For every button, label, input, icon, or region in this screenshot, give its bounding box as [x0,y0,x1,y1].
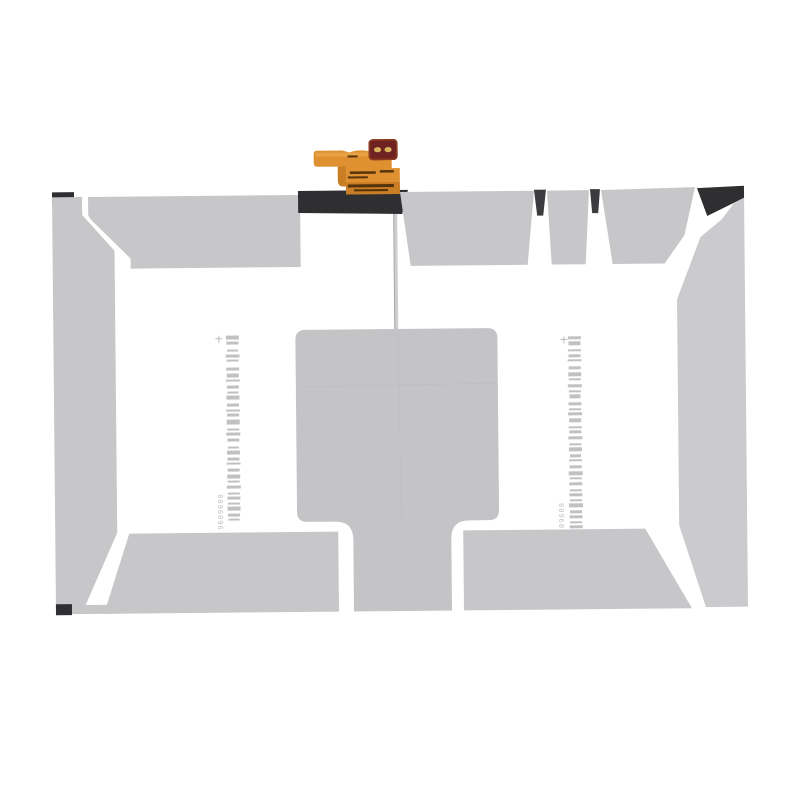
barcode-bar [229,519,240,521]
barcode-bar [570,454,581,457]
battery: 9609608 0109608 [51,136,748,616]
adhesive-flap-b [547,190,590,264]
adhesive-flap-a [400,191,535,266]
barcode-bar [569,402,582,405]
barcode-right-bars [567,336,583,528]
barcode-bar [227,497,240,500]
barcode-bar [226,368,239,371]
barcode-bar [569,418,581,422]
barcode-bar [568,412,582,415]
barcode-bar [227,360,239,362]
barcode-bar [569,354,581,357]
edge-notch-2 [590,189,600,213]
barcode-bar [569,482,582,485]
barcode-bar [570,515,583,518]
barcode-bar [569,443,581,445]
adhesive-tape-right [676,198,748,608]
barcode-bar [227,439,239,442]
barcode-bar [570,477,582,479]
adhesive-tape-bottom-right [463,528,692,610]
barcode-bar [569,430,581,433]
barcode-bar [570,521,582,523]
barcode-bar [568,384,582,387]
barcode-bar [226,410,240,412]
barcode-bar [227,486,241,489]
barcode-bar [227,463,241,465]
barcode-bar [569,426,582,428]
barcode-bar [570,489,582,491]
barcode-bar [568,436,582,439]
barcode-bar [228,503,240,505]
barcode-bar [570,510,582,513]
barcode-bar [568,359,582,361]
adhesive-tape-bottom-left [103,532,339,614]
barcode-bar [226,380,240,382]
barcode-bar [226,433,240,436]
adhesive-tape-top [88,195,301,269]
barcode-bar [569,394,580,398]
barcode-bar [568,341,580,345]
barcode-bar [227,392,238,394]
adhesive-flap-c [601,187,696,264]
barcode-left-bars [225,336,241,521]
barcode-bar [569,378,581,380]
flex-ribbon-highlight [316,152,372,157]
barcode-bar [569,471,583,475]
barcode-bar [226,342,238,345]
barcode-bar [569,447,582,451]
barcode-bar [570,499,582,501]
barcode-bar [228,447,239,449]
barcode-bar [227,451,240,455]
barcode-bar [569,503,583,507]
registration-mark-left [215,336,222,343]
barcode-bar [227,374,239,378]
barcode-bar [227,420,240,425]
edge-notch-1 [534,190,546,216]
barcode-bar [569,366,581,369]
barcode-bar [570,525,583,528]
barcode-bar [569,408,581,410]
barcode-bar [227,386,239,389]
barcode-bar [226,355,240,358]
barcode-bar [228,514,240,517]
barcode-bar [568,349,581,351]
barcode-bar [568,372,581,376]
flex-connector [368,139,397,160]
barcode-bar [568,336,581,339]
barcode-bar [227,475,240,479]
barcode-bar [570,465,582,468]
barcode-bar [569,459,582,461]
barcode-bar [227,507,240,511]
barcode-left: 9609608 [215,336,241,530]
barcode-bar [227,429,239,431]
barcode-left-digits: 9609608 [217,493,225,530]
product-image: 9609608 0109608 [0,0,800,800]
barcode-bar [228,469,240,472]
barcode-bar [227,404,239,407]
barcode-bar [227,414,239,417]
barcode-bar [569,390,581,392]
adhesive-tape-left [52,197,118,616]
barcode-bar [226,396,239,400]
battery-photo-svg: 9609608 0109608 [0,0,800,800]
barcode-bar [228,481,240,483]
barcode-bar [569,493,582,496]
barcode-right: 0109608 [556,336,583,538]
barcode-bar [228,493,240,495]
barcode-bar [227,350,238,352]
flex-cable [313,139,400,195]
registration-mark-right [560,336,567,343]
barcode-right-digits: 0109608 [558,502,566,539]
barcode-bar [228,458,240,461]
edge-tab-bottom-left [56,604,72,615]
barcode-bar [226,336,239,340]
